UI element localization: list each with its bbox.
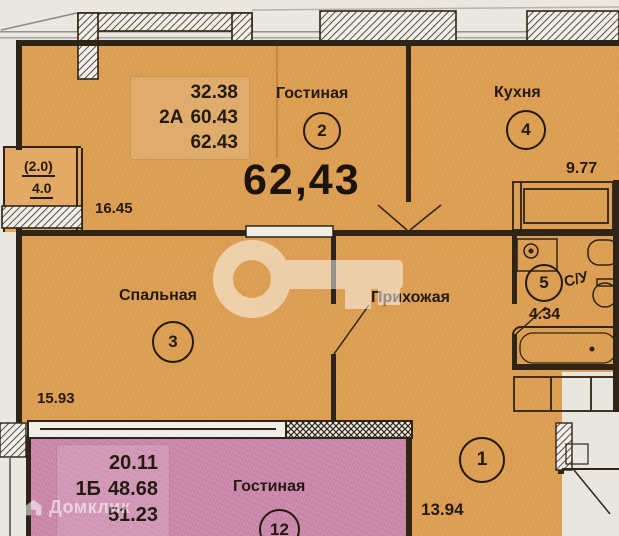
left-edge-line xyxy=(9,457,11,536)
stats-2a-unit-label: 2А xyxy=(159,107,183,128)
stats-2a-living: 32.38 xyxy=(128,80,238,105)
stats-1b-living: 20.11 xyxy=(58,450,158,476)
floor-plan: 32.38 2А60.43 62.43 62,43 Гостиная 2 16.… xyxy=(0,0,619,536)
room-badge-kitchen: 4 xyxy=(506,110,546,150)
dim-bathroom: 4.34 xyxy=(529,306,560,324)
balcony-factor: (2.0) xyxy=(22,158,55,177)
stats-2a-units-value: 60.43 xyxy=(190,107,238,128)
dim-living: 16.45 xyxy=(95,200,133,217)
stats-2a: 32.38 2А60.43 62.43 xyxy=(128,80,238,155)
dim-hallway: 13.94 xyxy=(421,500,464,520)
window-glass-lines xyxy=(0,7,619,39)
room-label-living: Гостиная xyxy=(276,85,348,103)
balcony-area: 4.0 xyxy=(30,180,53,199)
stats-1b-unit-label: 1Б xyxy=(75,478,101,500)
exterior-wall-piers xyxy=(320,11,619,42)
room-label-bedroom: Спальная xyxy=(119,287,197,305)
total-area-label: 62,43 xyxy=(243,156,361,205)
stats-1b-units: 1Б48.68 xyxy=(58,476,158,502)
room-label-1b-living: Гостиная xyxy=(233,478,305,496)
room-badge-living: 2 xyxy=(303,112,341,150)
stats-1b-units-value: 48.68 xyxy=(108,478,158,500)
stats-1b-total: 51.23 xyxy=(58,502,158,528)
room-label-kitchen: Кухня xyxy=(494,84,541,102)
dim-bedroom: 15.93 xyxy=(37,390,75,407)
stats-1b: 20.11 1Б48.68 51.23 xyxy=(58,450,158,528)
left-hatched-wall xyxy=(0,423,26,457)
room-badge-hallway: 1 xyxy=(459,437,505,483)
stats-2a-total: 62.43 xyxy=(128,130,238,155)
room-label-hallway: Прихожая xyxy=(371,289,450,307)
entrance-zone xyxy=(562,372,619,536)
room-badge-bathroom: 5 xyxy=(525,264,563,302)
stats-2a-units: 2А60.43 xyxy=(128,105,238,130)
room-badge-bedroom: 3 xyxy=(152,321,194,363)
dim-kitchen: 9.77 xyxy=(566,160,597,178)
